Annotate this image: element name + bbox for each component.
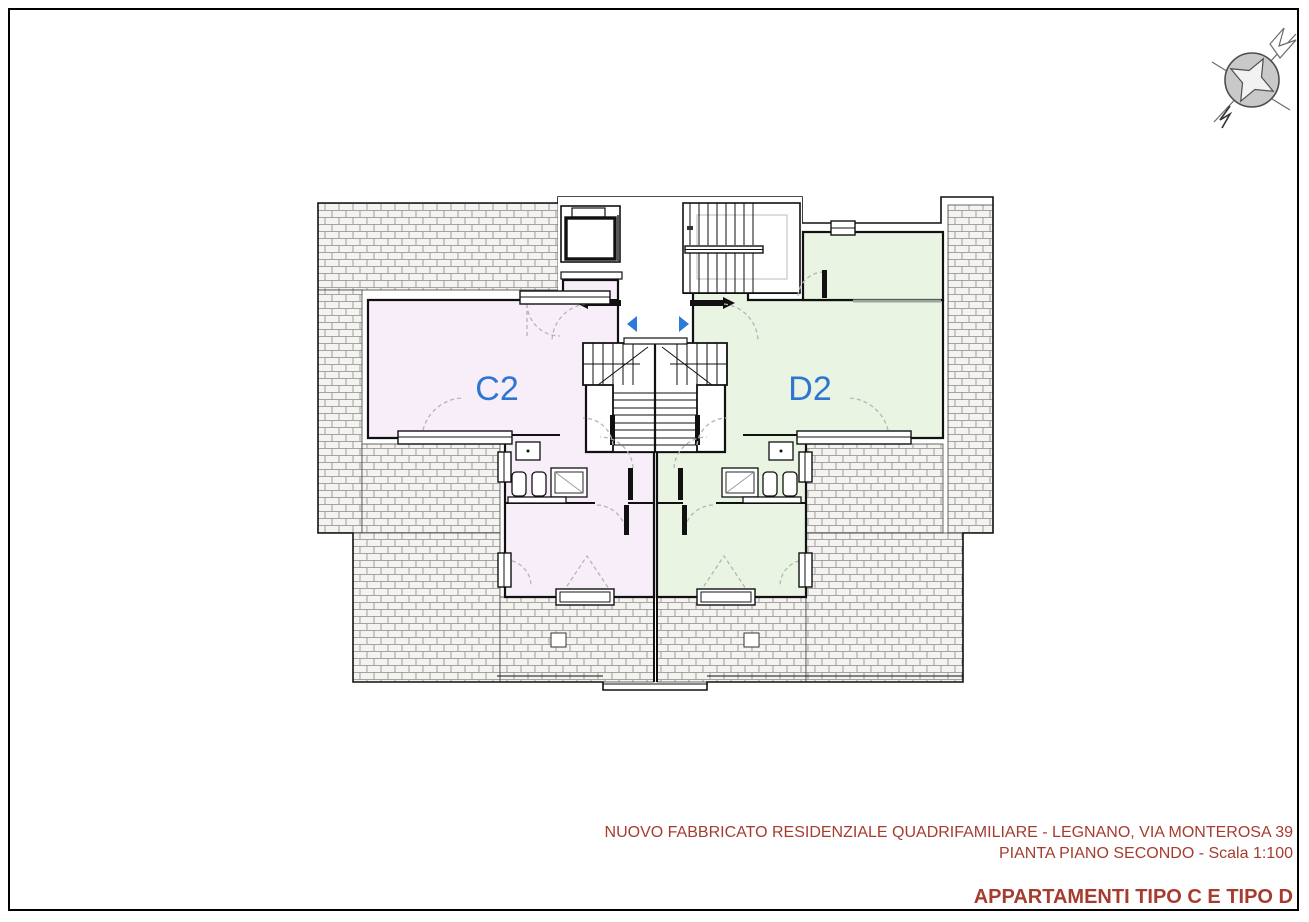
terrace-left-column: [318, 290, 362, 533]
stairwell-lower: [583, 338, 727, 452]
drawing-sheet: C2 D2 NUOVO FABBRICATO RESIDENZIALE QUAD…: [0, 0, 1309, 922]
toilet-d2: [783, 472, 797, 496]
title-block: NUOVO FABBRICATO RESIDENZIALE QUADRIFAMI…: [593, 822, 1293, 909]
terrace-right-column: [948, 205, 993, 533]
bidet-c2: [532, 472, 546, 496]
terrace-bottom-right: [806, 533, 963, 682]
terrace-left-mid: [362, 444, 500, 533]
terrace-upper-left: [318, 203, 558, 290]
terrace-right-mid: [806, 444, 943, 533]
project-title: NUOVO FABBRICATO RESIDENZIALE QUADRIFAMI…: [593, 822, 1293, 843]
sheet-title: APPARTAMENTI TIPO C E TIPO D: [593, 886, 1293, 909]
terrace-bottom-left: [353, 533, 500, 682]
toilet-c2: [512, 472, 526, 496]
apartment-d2-label: D2: [788, 370, 831, 408]
apartment-c2-label: C2: [475, 370, 518, 408]
floor-plan: C2 D2: [310, 190, 1000, 705]
north-arrow-icon: [1200, 18, 1304, 130]
terrace-bottom-c2: [500, 597, 654, 682]
terrace-bottom-d2: [657, 597, 806, 682]
bidet-d2: [763, 472, 777, 496]
plan-subtitle: PIANTA PIANO SECONDO - Scala 1:100: [593, 843, 1293, 864]
stairwell-upper: [683, 203, 800, 293]
